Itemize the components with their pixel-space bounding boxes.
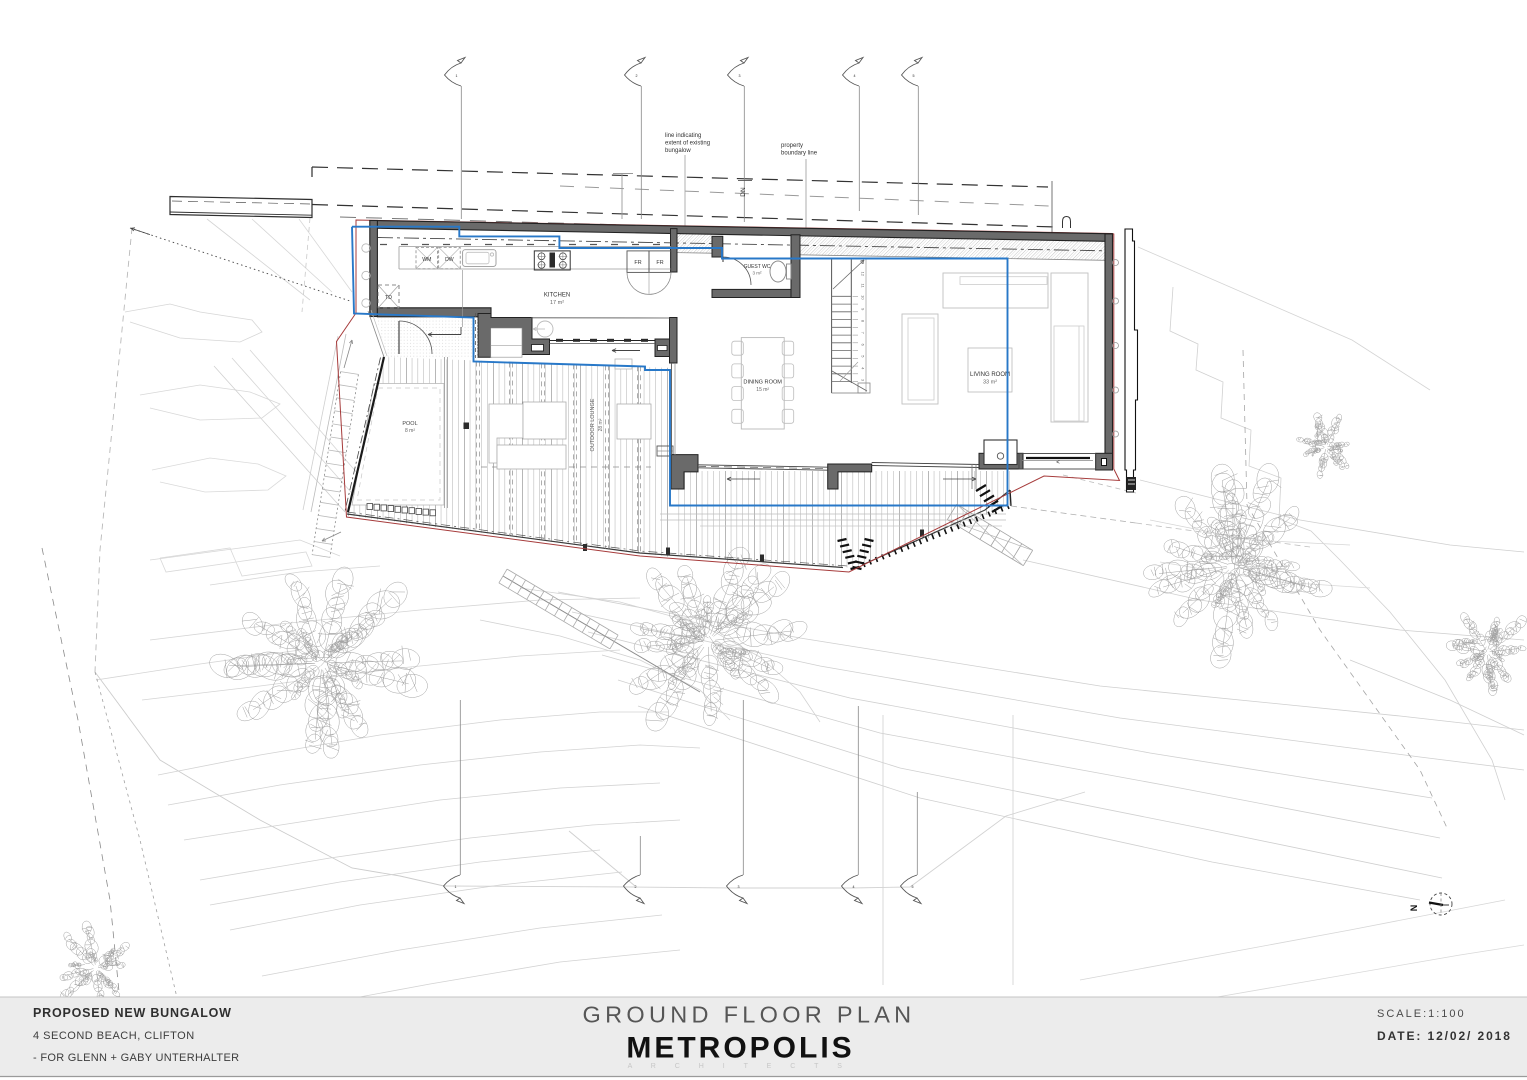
svg-text:DW: DW: [445, 257, 454, 263]
svg-text:N: N: [1409, 905, 1419, 912]
svg-text:FR: FR: [634, 260, 641, 266]
svg-text:bungalow: bungalow: [665, 148, 691, 154]
svg-text:4: 4: [854, 74, 856, 78]
svg-text:FR: FR: [656, 260, 663, 266]
svg-text:POOL: POOL: [402, 421, 417, 427]
svg-text:8 m²: 8 m²: [405, 428, 415, 434]
svg-text:2: 2: [635, 885, 637, 889]
svg-text:boundary line: boundary line: [781, 151, 818, 157]
svg-text:GROUND FLOOR PLAN: GROUND FLOOR PLAN: [583, 1002, 916, 1028]
svg-text:WM: WM: [422, 257, 431, 263]
svg-text:GUEST WC: GUEST WC: [744, 264, 771, 270]
svg-text:3: 3: [739, 74, 741, 78]
svg-text:SCALE:1:100: SCALE:1:100: [1377, 1008, 1466, 1020]
svg-text:DN: DN: [740, 187, 747, 197]
svg-text:2: 2: [636, 74, 638, 78]
svg-text:DINING ROOM: DINING ROOM: [743, 380, 782, 386]
svg-text:KITCHEN: KITCHEN: [544, 293, 570, 299]
svg-text:OUTDOOR LOUNGE: OUTDOOR LOUNGE: [590, 398, 596, 451]
svg-text:33 m²: 33 m²: [983, 380, 997, 386]
svg-text:13: 13: [861, 260, 866, 265]
svg-text:1: 1: [455, 885, 457, 889]
svg-text:DATE: 12/02/ 2018: DATE: 12/02/ 2018: [1377, 1029, 1512, 1043]
svg-text:3: 3: [738, 885, 740, 889]
svg-text:PROPOSED NEW BUNGALOW: PROPOSED NEW BUNGALOW: [33, 1006, 232, 1020]
svg-text:17 m²: 17 m²: [550, 300, 564, 306]
svg-text:extent of existing: extent of existing: [665, 141, 710, 147]
svg-text:5: 5: [913, 74, 915, 78]
svg-text:4: 4: [853, 885, 855, 889]
svg-text:1: 1: [456, 74, 458, 78]
svg-text:28 m²: 28 m²: [598, 418, 604, 431]
svg-text:12: 12: [861, 272, 866, 277]
svg-text:A R C H I T E C T S: A R C H I T E C T S: [628, 1063, 851, 1070]
svg-text:3 m²: 3 m²: [753, 271, 763, 276]
svg-text:4 SECOND BEACH, CLIFTON: 4 SECOND BEACH, CLIFTON: [33, 1030, 195, 1042]
svg-text:property: property: [781, 143, 803, 149]
svg-text:15 m²: 15 m²: [756, 387, 769, 393]
svg-text:- FOR GLENN + GABY UNTERHALTER: - FOR GLENN + GABY UNTERHALTER: [33, 1052, 239, 1064]
svg-text:LIVING ROOM: LIVING ROOM: [970, 372, 1010, 378]
svg-text:TD: TD: [385, 295, 392, 301]
svg-text:line indicating: line indicating: [665, 133, 701, 139]
svg-text:METROPOLIS: METROPOLIS: [626, 1032, 854, 1065]
svg-text:<: <: [1056, 460, 1060, 466]
svg-text:5: 5: [912, 885, 914, 889]
svg-text:10: 10: [861, 295, 866, 300]
